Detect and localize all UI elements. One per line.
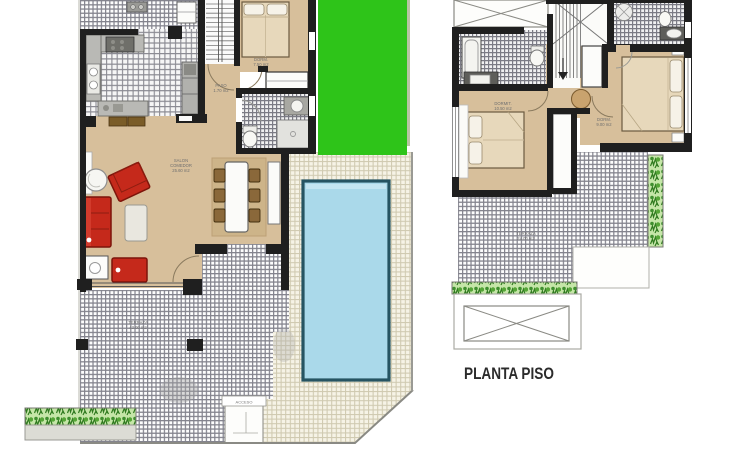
svg-text:7.50 m2: 7.50 m2 (253, 62, 269, 67)
svg-text:PLANTA PISO: PLANTA PISO (464, 365, 554, 383)
svg-text:10.50 m2: 10.50 m2 (494, 106, 512, 111)
svg-text:ACCESO: ACCESO (236, 400, 253, 405)
svg-text:43.00 m2: 43.00 m2 (129, 325, 147, 330)
svg-text:25.60 m2: 25.60 m2 (172, 168, 190, 173)
svg-text:24.00 m2: 24.00 m2 (517, 236, 535, 241)
svg-text:1.70 m2: 1.70 m2 (213, 88, 229, 93)
svg-text:9.00 m2: 9.00 m2 (596, 122, 612, 127)
